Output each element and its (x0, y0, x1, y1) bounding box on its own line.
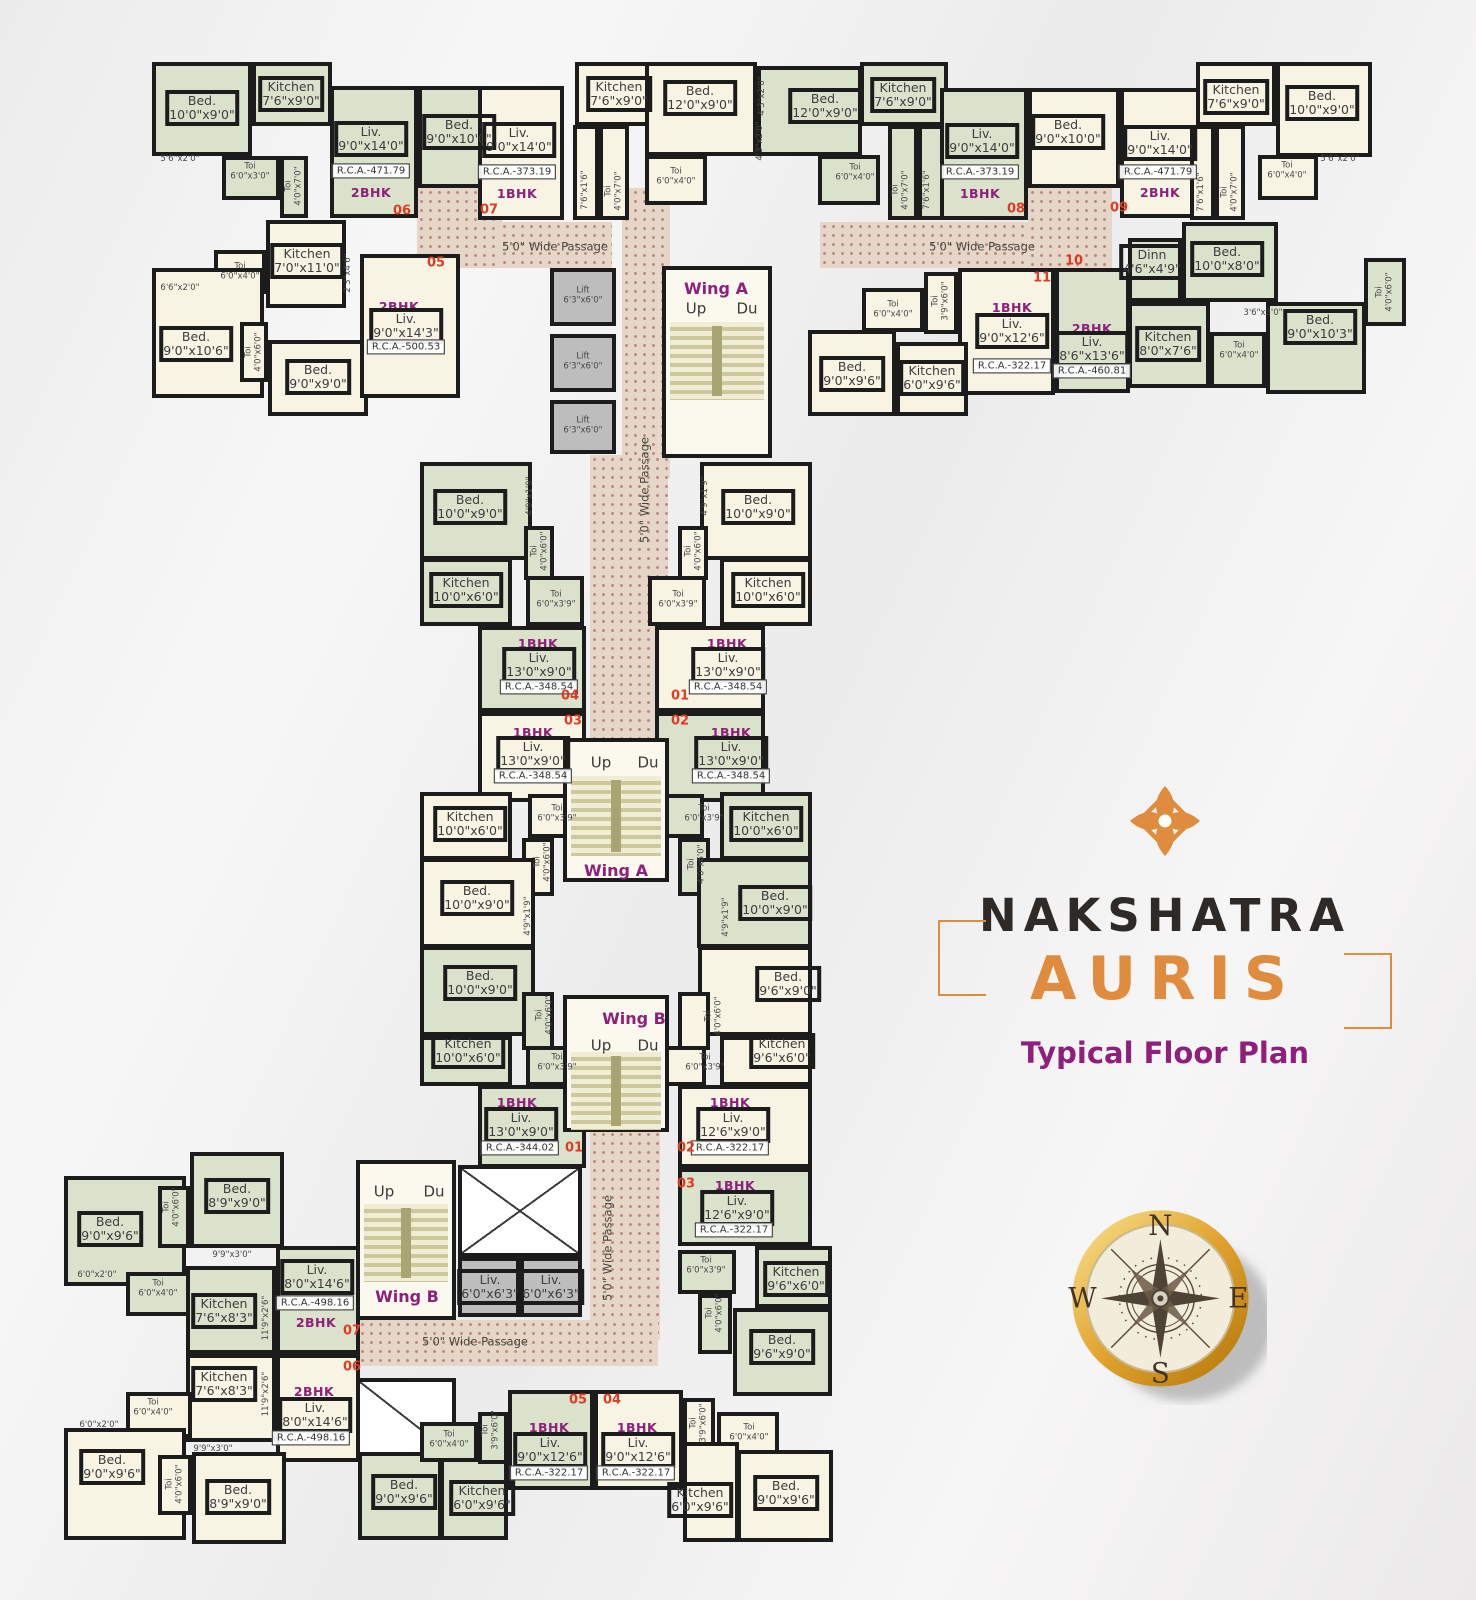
room-label: Liv.9'0"x12'6" (601, 1432, 675, 1468)
rca-area-label: R.C.A.-322.17 (510, 1465, 588, 1480)
toilet-label: Toi6'0"x4'0" (220, 262, 259, 281)
toilet-label: Toi6'0"x4'0" (835, 163, 874, 182)
toilet-label: Toi4'0"x6'0" (705, 1293, 724, 1332)
room-label: Bed.10'0"x9'0" (165, 90, 239, 126)
compass-east-label: E (1228, 1282, 1248, 1315)
unit-number: 02 (671, 715, 689, 730)
brand-name-top: NAKSHATRA (930, 889, 1400, 942)
room-label: Kitchen7'6"x9'0" (870, 77, 936, 113)
dimension-label: 7'6"x1'6" (923, 170, 933, 209)
unit-type-label: 1BHK (497, 187, 537, 201)
room-label: Kitchen7'6"x9'0" (258, 76, 324, 112)
rca-area-label: R.C.A.-373.19 (941, 164, 1019, 179)
room-label: Bed.9'0"x9'6" (819, 356, 885, 392)
compass-south-label: S (1151, 1356, 1170, 1389)
dimension-label: 4'9"x1'9" (526, 476, 536, 515)
rca-area-label: R.C.A.-348.54 (494, 768, 572, 783)
room-label: Liv.6'0"x6'3" (457, 1269, 523, 1305)
stair-steps (571, 776, 661, 856)
logo-bracket-right (1344, 953, 1392, 1029)
passage-label: 5'0" Wide Passage (502, 241, 608, 254)
room-label: Bed.10'0"x8'0" (1190, 241, 1264, 277)
room-label: Kitchen7'6"x8'3" (191, 1293, 257, 1329)
compass-west-label: W (1068, 1282, 1097, 1315)
rca-area-label: R.C.A.-322.17 (597, 1465, 675, 1480)
room-label: Bed.12'0"x9'0" (663, 80, 737, 116)
room-label: Bed.10'0"x9'0" (440, 880, 514, 916)
unit-number: 08 (1007, 203, 1025, 218)
toilet-label: Toi6'0"x3'0" (230, 162, 269, 181)
dimension-label: 9'9"x3'0" (193, 1445, 232, 1455)
toilet-label: Toi4'0"x6'0" (533, 842, 552, 881)
room-label: Liv.13'0"x9'0" (484, 1107, 558, 1143)
toilet-label: Toi4'0"x6'0" (684, 531, 703, 570)
logo-bracket-left (938, 920, 986, 996)
toilet-label: Toi4'0"x6'0" (244, 332, 263, 371)
room-label: Kitchen10'0"x6'0" (433, 806, 507, 842)
lotus-icon (1119, 775, 1211, 867)
toilet-label: Toi4'0"x6'0" (1375, 272, 1394, 311)
room-label: Kitchen7'6"x8'3" (191, 1366, 257, 1402)
toilet-label: Toi6'0"x4'0" (1219, 341, 1258, 360)
room-label: Liv.9'0"x14'0" (945, 123, 1019, 159)
dimension-label: 11'9"x2'6" (262, 1372, 272, 1417)
room-label: Liv.9'0"x14'0" (482, 122, 556, 158)
unit-number: 04 (603, 1394, 621, 1409)
toilet-label: Toi6'0"x3'9" (658, 590, 697, 609)
toilet-label: Lift6'3"x6'0" (563, 352, 602, 371)
toilet-label: Toi6'0"x4'0" (656, 167, 695, 186)
unit-number: 02 (677, 1142, 695, 1157)
unit-type-label: 2BHK (1140, 186, 1180, 200)
dimension-label: 11'9"x2'6" (262, 1296, 272, 1341)
room-label: Bed.10'0"x9'0" (738, 885, 812, 921)
unit-type-label: 2BHK (296, 1316, 336, 1330)
refuge-area (458, 1165, 582, 1257)
room-label: Kitchen10'0"x6'0" (729, 806, 803, 842)
passage-label: 5'0" Wide Passage (602, 1195, 615, 1301)
rca-area-label: R.C.A.-373.19 (478, 164, 556, 179)
dimension-label: 7'6"x1'6" (1197, 172, 1207, 211)
rca-area-label: R.C.A.-498.16 (272, 1430, 350, 1445)
room-label: Kitchen6'0"x9'6" (899, 360, 965, 396)
room-label: Kitchen9'6"x6'0" (763, 1261, 829, 1297)
wing-label: Wing B (602, 1010, 666, 1028)
brand-logo: NAKSHATRA AURIS Typical Floor Plan (930, 775, 1400, 1070)
toilet-label: Toi4'0"x6'0" (535, 995, 554, 1034)
room-label: Kitchen6'0"x9'6" (667, 1482, 733, 1518)
dimension-label: 3'6"x3'0" (1243, 309, 1282, 319)
rca-area-label: R.C.A.-344.02 (481, 1140, 559, 1155)
stair-direction-label: Du (637, 755, 658, 772)
room-label: Liv.13'0"x9'0" (502, 647, 576, 683)
room-label: Bed.10'0"x9'0" (433, 489, 507, 525)
unit-number: 03 (677, 1178, 695, 1193)
room-label: Kitchen7'6"x9'0" (586, 76, 652, 112)
room-label: Liv.9'0"x14'0" (334, 121, 408, 157)
rca-area-label: R.C.A.-471.79 (1119, 164, 1197, 179)
dimension-label: 4'9"x1'9" (701, 476, 711, 515)
room-label: Liv.6'0"x6'3" (518, 1269, 584, 1305)
room-label: Bed.10'0"x9'0" (1285, 85, 1359, 121)
room-label: Bed.10'0"x9'0" (443, 965, 517, 1001)
dimension-label: 6'0"x2'0" (79, 1421, 118, 1431)
unit-type-label: 1BHK (960, 187, 1000, 201)
room-label: Kitchen8'0"x7'6" (1135, 326, 1201, 362)
dimension-label: 6'0"x2'0" (77, 1271, 116, 1281)
room-label: Bed.9'0"x10'6" (159, 326, 233, 362)
unit-number: 06 (393, 205, 411, 220)
toilet-label: Toi3'9"x6'0" (931, 281, 950, 320)
stair-direction-label: Up (686, 301, 707, 318)
unit-number: 06 (343, 1361, 361, 1376)
rca-area-label: R.C.A.-322.17 (695, 1222, 773, 1237)
room-label: Liv.9'0"x12'6" (975, 313, 1049, 349)
toilet-label: Toi4'0"x7'0" (891, 170, 910, 209)
dimension-label: 4'3"x2'0" (758, 76, 768, 115)
toilet-label: Toi6'0"x4'0" (729, 1423, 768, 1442)
toilet-label: Toi3'9"x6'0" (481, 1410, 500, 1449)
room-label: Bed.9'0"x9'6" (77, 1211, 143, 1247)
room-label: Bed.10'0"x9'0" (721, 489, 795, 525)
room-label: Bed.8'9"x9'0" (205, 1479, 271, 1515)
toilet-label: Toi6'0"x4'0" (1267, 161, 1306, 180)
dimension-label: 5'6"x2'0" (160, 155, 199, 165)
stair-direction-label: Du (736, 301, 757, 318)
room-label: Liv.8'0"x14'6" (280, 1259, 354, 1295)
room-label: Liv.9'0"x12'6" (513, 1432, 587, 1468)
rca-area-label: R.C.A.-322.17 (691, 1140, 769, 1155)
room-label: Kitchen7'6"x9'0" (1203, 79, 1269, 115)
room-label: Kitchen10'0"x6'0" (429, 572, 503, 608)
room-label: Liv.12'6"x9'0" (700, 1190, 774, 1226)
passage-label: 5'0" Wide Passage (929, 241, 1035, 254)
dimension-label: 7'6"x1'6" (581, 170, 591, 209)
toilet-label: Toi4'0"x6'0" (687, 844, 706, 883)
rca-area-label: R.C.A.-322.17 (973, 358, 1051, 373)
room-label: Bed.9'6"x9'0" (755, 966, 821, 1002)
room-label: Bed.9'0"x9'0" (285, 359, 351, 395)
brand-name-bottom: AURIS (930, 944, 1400, 1014)
toilet-label: Toi4'0"x6'0" (704, 996, 723, 1035)
dimension-label: 2'3"x4'6" (344, 253, 354, 292)
rca-area-label: R.C.A.-500.53 (367, 339, 445, 354)
room-label: Bed.12'0"x9'0" (788, 88, 862, 124)
dimension-label: 5'6"x2'0" (1320, 155, 1359, 165)
room-label: Bed.9'0"x9'6" (79, 1449, 145, 1485)
rca-area-label: R.C.A.-348.54 (689, 679, 767, 694)
floor-plan-canvas: Bed.10'0"x9'0"Kitchen7'6"x9'0"Liv.9'0"x1… (0, 0, 1476, 1600)
wing-label: Wing B (375, 1288, 439, 1306)
unit-number: 05 (569, 1394, 587, 1409)
room-label: Bed.9'0"x10'3" (1283, 309, 1357, 345)
passage-label: 5'0" Wide Passage (422, 1336, 528, 1349)
toilet-label: Lift6'3"x6'0" (563, 416, 602, 435)
room-label: Liv.13'0"x9'0" (694, 736, 768, 772)
toilet-label: Toi6'0"x3'9" (537, 1053, 576, 1072)
room-label: Liv.8'0"x14'6" (278, 1397, 352, 1433)
rca-area-label: R.C.A.-460.81 (1053, 363, 1131, 378)
toilet-label: Toi6'0"x3'9" (685, 1053, 724, 1072)
toilet-label: Toi4'0"x6'0" (162, 1187, 181, 1226)
stair-direction-label: Du (423, 1184, 444, 1201)
room-label: Bed.9'0"x9'6" (753, 1475, 819, 1511)
unit-number: 01 (565, 1142, 583, 1157)
page-title: Typical Floor Plan (930, 1036, 1400, 1070)
unit-number: 01 (671, 690, 689, 705)
wing-label: Wing A (684, 280, 748, 298)
toilet-label: Toi4'0"x6'0" (165, 1464, 184, 1503)
toilet-label: Toi4'0"x6'0" (530, 531, 549, 570)
stair-direction-label: Up (591, 755, 612, 772)
room-label: Liv.12'6"x9'0" (696, 1107, 770, 1143)
room-label: Kitchen6'0"x9'6" (449, 1480, 515, 1516)
dimension-label: 4'3"x2'0" (756, 121, 766, 160)
unit-number: 04 (561, 690, 579, 705)
room-label: Liv.13'0"x9'0" (691, 647, 765, 683)
stair-direction-label: Up (591, 1038, 612, 1055)
unit-number: 10 (1065, 255, 1083, 270)
stair-steps (364, 1204, 448, 1282)
toilet-label: Toi6'0"x4'0" (133, 1398, 172, 1417)
toilet-label: Toi4'0"x7'0" (604, 171, 623, 210)
room-label: Kitchen10'0"x6'0" (731, 572, 805, 608)
stair-direction-label: Du (637, 1038, 658, 1055)
unit-number: 11 (1033, 272, 1051, 287)
toilet-label: Toi4'0"x7'0" (284, 166, 303, 205)
toilet-label: Toi3'9"x6'0" (689, 1403, 708, 1442)
compass-north-label: N (1148, 1209, 1172, 1242)
unit-number: 07 (343, 1325, 361, 1340)
passage-label: 5'0" Wide Passage (639, 437, 652, 543)
room-label: Liv.8'6"x13'6" (1055, 331, 1129, 367)
toilet-label: Toi6'0"x3'9" (686, 1256, 725, 1275)
dimension-label: 4'9"x1'9" (722, 897, 732, 936)
room-label: Liv.13'0"x9'0" (496, 736, 570, 772)
room-label: Kitchen7'0"x11'0" (270, 243, 344, 279)
rca-area-label: R.C.A.-348.54 (692, 768, 770, 783)
toilet-label: Toi6'0"x4'0" (873, 300, 912, 319)
unit-type-label: 2BHK (351, 186, 391, 200)
rca-area-label: R.C.A.-498.16 (276, 1295, 354, 1310)
unit-number: 03 (564, 715, 582, 730)
unit-number: 05 (427, 257, 445, 272)
wing-label: Wing A (584, 862, 648, 880)
stair-steps (670, 322, 764, 400)
room-label: Liv.9'0"x14'0" (1123, 125, 1197, 161)
toilet-label: Toi4'0"x7'0" (1220, 172, 1239, 211)
dimension-label: 6'6"x2'0" (160, 284, 199, 294)
toilet-label: Lift6'3"x6'0" (563, 286, 602, 305)
toilet-label: Toi6'0"x3'9" (536, 590, 575, 609)
rca-area-label: R.C.A.-471.79 (332, 163, 410, 178)
room-label: Kitchen10'0"x6'0" (431, 1033, 505, 1069)
dimension-label: 9'9"x3'0" (212, 1251, 251, 1261)
room-label: Bed.8'9"x9'0" (204, 1178, 270, 1214)
toilet-label: Toi6'0"x4'0" (138, 1279, 177, 1298)
room-label: Kitchen9'6"x6'0" (749, 1033, 815, 1069)
toilet-label: Toi6'0"x3'9" (684, 804, 723, 823)
stair-direction-label: Up (374, 1184, 395, 1201)
room-label: Bed.9'6"x9'0" (749, 1329, 815, 1365)
room-label: Dinn4'6"x4'9" (1119, 244, 1185, 280)
toilet-label: Toi6'0"x3'9" (537, 804, 576, 823)
unit-number: 09 (1110, 202, 1128, 217)
toilet-label: Toi6'0"x4'0" (429, 1430, 468, 1449)
dimension-label: 4'9"x1'9" (524, 896, 534, 935)
compass-icon: N S W E (1062, 1200, 1267, 1405)
stair-steps (571, 1052, 661, 1130)
room-label: Bed.9'0"x9'6" (371, 1474, 437, 1510)
room-label: Bed.9'0"x10'0" (1031, 114, 1105, 150)
unit-number: 07 (480, 204, 498, 219)
